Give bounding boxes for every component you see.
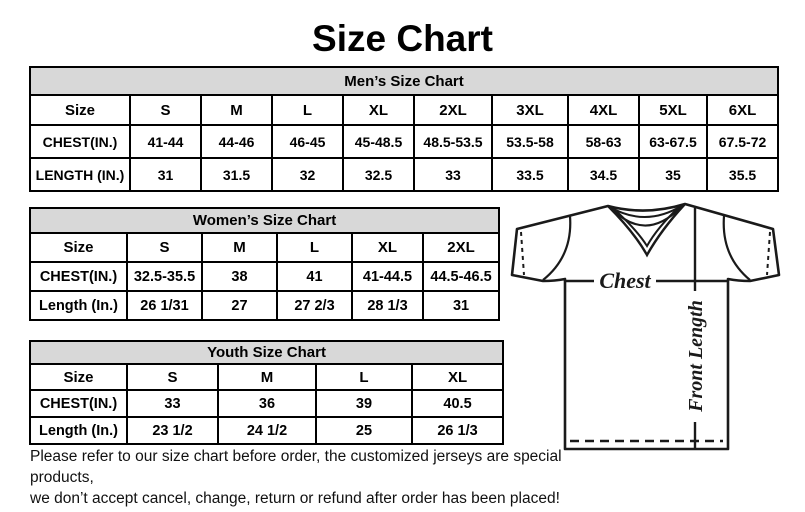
header-cell: 4XL: [568, 95, 639, 125]
header-cell: 6XL: [707, 95, 778, 125]
row-label-cell: Length (In.): [30, 291, 127, 320]
mens-size-table: Men’s Size Chart Size S M L XL 2XL 3XL 4…: [29, 66, 779, 192]
table-title: Youth Size Chart: [30, 341, 503, 364]
table-row: Size S M L XL: [30, 364, 503, 390]
table-title: Women’s Size Chart: [30, 208, 499, 233]
disclaimer-line-2: we don’t accept cancel, change, return o…: [30, 488, 570, 509]
value-cell: 41-44.5: [352, 262, 423, 291]
value-cell: 27 2/3: [277, 291, 352, 320]
youth-size-table: Youth Size Chart Size S M L XL CHEST(IN.…: [29, 340, 504, 445]
value-cell: 35: [639, 158, 707, 191]
value-cell: 41-44: [130, 125, 201, 158]
value-cell: 31.5: [201, 158, 272, 191]
disclaimer-line-1: Please refer to our size chart before or…: [30, 446, 570, 488]
header-cell: XL: [352, 233, 423, 262]
header-cell: 5XL: [639, 95, 707, 125]
chest-label: Chest: [599, 268, 651, 293]
table-row: Size S M L XL 2XL: [30, 233, 499, 262]
row-label-cell: CHEST(IN.): [30, 390, 127, 417]
size-chart-page: Size Chart Men’s Size Chart Size S M L X…: [0, 0, 805, 512]
value-cell: 32: [272, 158, 343, 191]
value-cell: 25: [316, 417, 412, 444]
value-cell: 48.5-53.5: [414, 125, 492, 158]
value-cell: 36: [218, 390, 316, 417]
value-cell: 45-48.5: [343, 125, 414, 158]
value-cell: 67.5-72: [707, 125, 778, 158]
table-row: CHEST(IN.) 41-44 44-46 46-45 45-48.5 48.…: [30, 125, 778, 158]
row-label-cell: LENGTH (IN.): [30, 158, 130, 191]
header-cell: XL: [412, 364, 503, 390]
header-cell: L: [272, 95, 343, 125]
table-row: Size S M L XL 2XL 3XL 4XL 5XL 6XL: [30, 95, 778, 125]
front-length-label: Front Length: [685, 300, 707, 413]
row-label-cell: Size: [30, 95, 130, 125]
header-cell: S: [127, 233, 202, 262]
table-row: CHEST(IN.) 32.5-35.5 38 41 41-44.5 44.5-…: [30, 262, 499, 291]
value-cell: 34.5: [568, 158, 639, 191]
value-cell: 41: [277, 262, 352, 291]
value-cell: 58-63: [568, 125, 639, 158]
value-cell: 32.5-35.5: [127, 262, 202, 291]
header-cell: XL: [343, 95, 414, 125]
table-header-band: Men’s Size Chart: [30, 67, 778, 95]
table-row: Length (In.) 26 1/31 27 27 2/3 28 1/3 31: [30, 291, 499, 320]
header-cell: 2XL: [414, 95, 492, 125]
table-title: Men’s Size Chart: [30, 67, 778, 95]
value-cell: 38: [202, 262, 277, 291]
value-cell: 31: [130, 158, 201, 191]
table-header-band: Women’s Size Chart: [30, 208, 499, 233]
tshirt-outline: [512, 204, 779, 449]
tshirt-diagram: Chest Front Length: [510, 194, 800, 458]
value-cell: 53.5-58: [492, 125, 568, 158]
disclaimer-text: Please refer to our size chart before or…: [30, 446, 570, 509]
row-label-cell: Length (In.): [30, 417, 127, 444]
value-cell: 33: [414, 158, 492, 191]
value-cell: 23 1/2: [127, 417, 218, 444]
value-cell: 24 1/2: [218, 417, 316, 444]
value-cell: 31: [423, 291, 499, 320]
header-cell: S: [130, 95, 201, 125]
header-cell: M: [218, 364, 316, 390]
value-cell: 63-67.5: [639, 125, 707, 158]
value-cell: 40.5: [412, 390, 503, 417]
value-cell: 33: [127, 390, 218, 417]
row-label-cell: CHEST(IN.): [30, 125, 130, 158]
value-cell: 44.5-46.5: [423, 262, 499, 291]
value-cell: 26 1/3: [412, 417, 503, 444]
page-title: Size Chart: [0, 20, 805, 57]
value-cell: 28 1/3: [352, 291, 423, 320]
table-row: Length (In.) 23 1/2 24 1/2 25 26 1/3: [30, 417, 503, 444]
womens-size-table: Women’s Size Chart Size S M L XL 2XL CHE…: [29, 207, 500, 321]
value-cell: 32.5: [343, 158, 414, 191]
header-cell: S: [127, 364, 218, 390]
header-cell: 3XL: [492, 95, 568, 125]
value-cell: 33.5: [492, 158, 568, 191]
value-cell: 35.5: [707, 158, 778, 191]
row-label-cell: Size: [30, 364, 127, 390]
value-cell: 44-46: [201, 125, 272, 158]
header-cell: 2XL: [423, 233, 499, 262]
table-header-band: Youth Size Chart: [30, 341, 503, 364]
header-cell: L: [316, 364, 412, 390]
header-cell: L: [277, 233, 352, 262]
row-label-cell: CHEST(IN.): [30, 262, 127, 291]
table-row: LENGTH (IN.) 31 31.5 32 32.5 33 33.5 34.…: [30, 158, 778, 191]
value-cell: 27: [202, 291, 277, 320]
header-cell: M: [202, 233, 277, 262]
header-cell: M: [201, 95, 272, 125]
value-cell: 26 1/31: [127, 291, 202, 320]
table-row: CHEST(IN.) 33 36 39 40.5: [30, 390, 503, 417]
row-label-cell: Size: [30, 233, 127, 262]
value-cell: 39: [316, 390, 412, 417]
value-cell: 46-45: [272, 125, 343, 158]
